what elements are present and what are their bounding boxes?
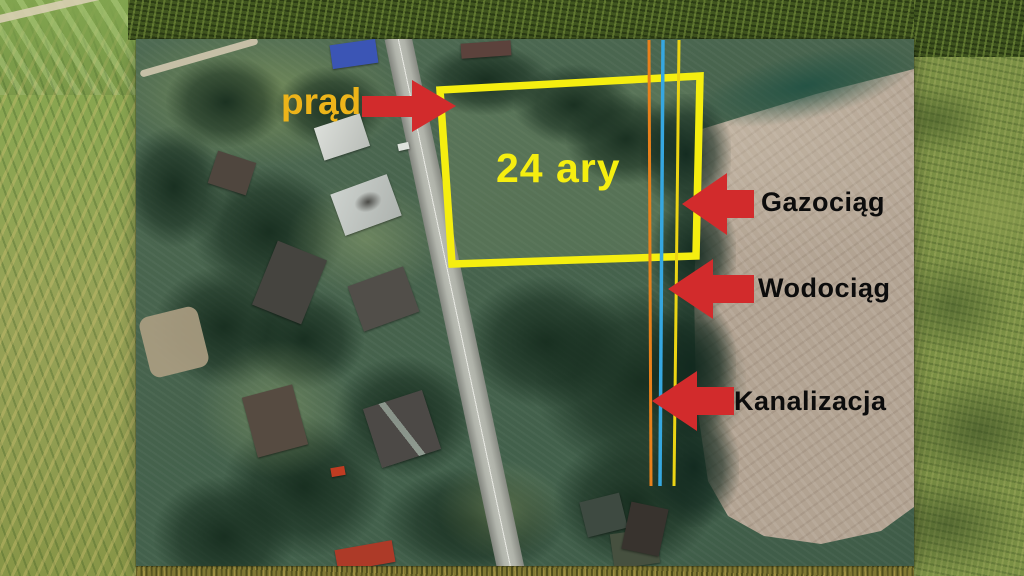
water-label: Wodociąg (758, 275, 891, 302)
background-grass-right (914, 57, 1024, 576)
background-cornfield-top (128, 0, 1024, 40)
electricity-label: prąd (281, 83, 361, 120)
background-cornfield-right (914, 0, 1024, 57)
gas-label: Gazociąg (761, 189, 885, 216)
plot-area-label: 24 ary (496, 148, 621, 189)
sewage-label: Kanalizacja (734, 388, 887, 415)
tree-cluster (154, 477, 294, 566)
land-plot-advert: { "annotations": { "area": "24 ary", "el… (0, 0, 1024, 576)
